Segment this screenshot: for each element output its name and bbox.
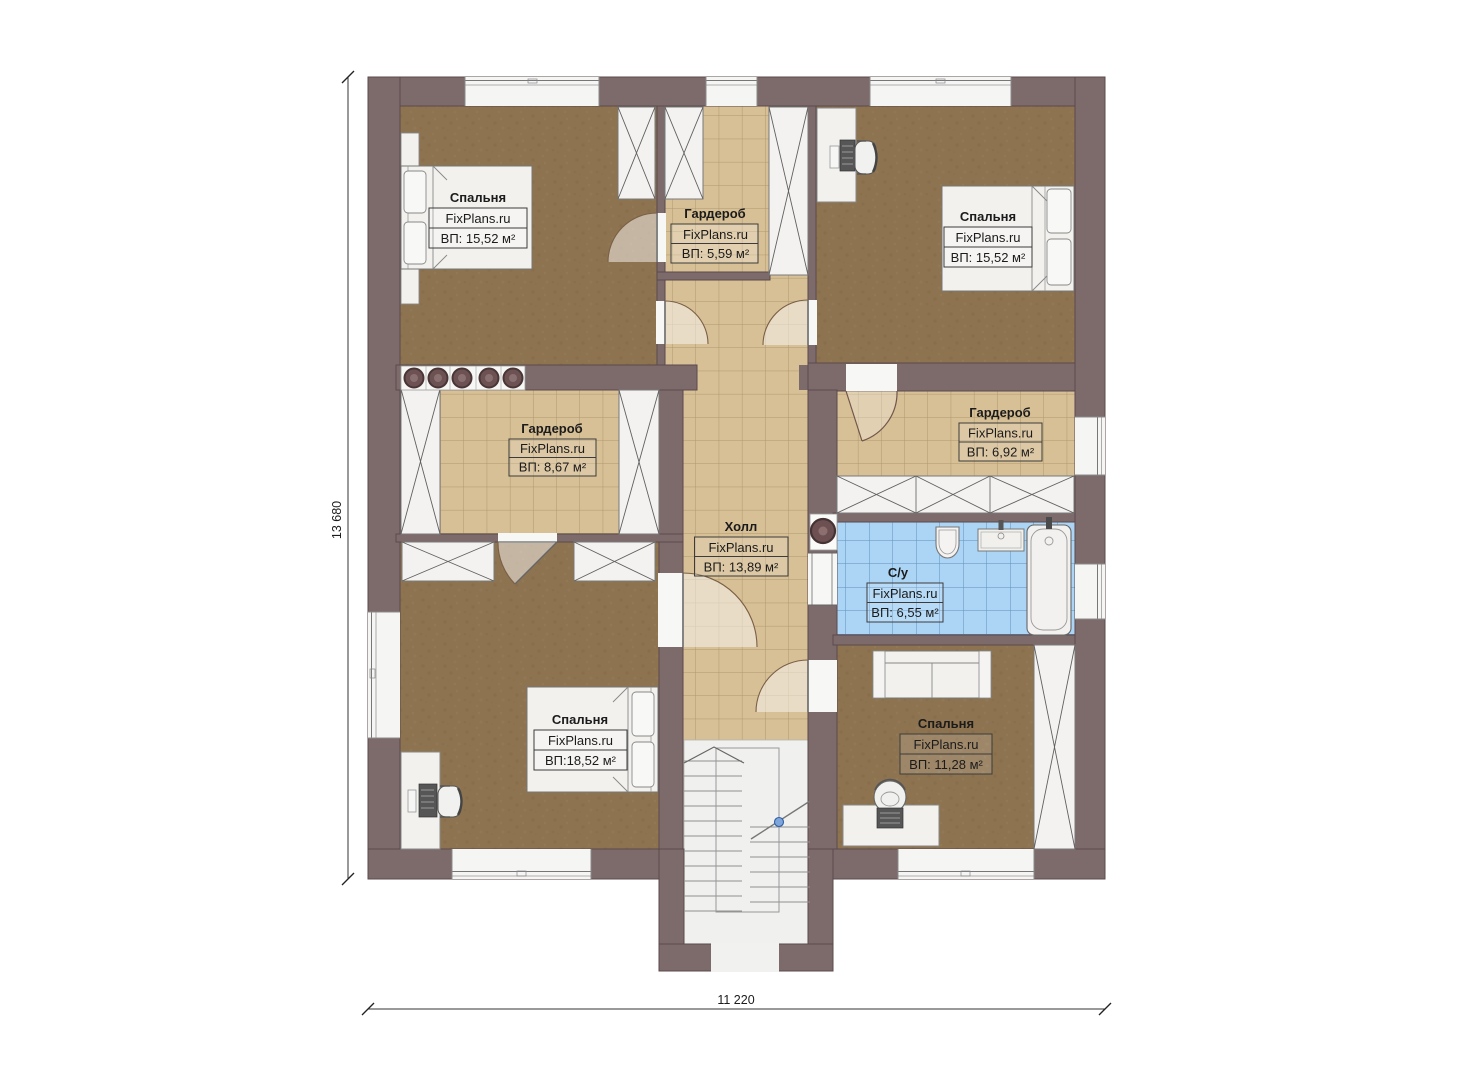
svg-text:Холл: Холл	[725, 519, 758, 534]
svg-text:Спальня: Спальня	[450, 190, 506, 205]
svg-text:Спальня: Спальня	[960, 209, 1016, 224]
svg-text:13 680: 13 680	[330, 501, 344, 539]
svg-text:ВП: 11,28 м²: ВП: 11,28 м²	[909, 757, 983, 772]
svg-text:Спальня: Спальня	[552, 712, 608, 727]
svg-text:ВП:18,52 м²: ВП:18,52 м²	[545, 753, 617, 768]
svg-text:С/у: С/у	[888, 565, 909, 580]
svg-text:FixPlans.ru: FixPlans.ru	[548, 733, 613, 748]
svg-text:FixPlans.ru: FixPlans.ru	[913, 737, 978, 752]
svg-text:FixPlans.ru: FixPlans.ru	[708, 540, 773, 555]
svg-text:ВП: 13,89 м²: ВП: 13,89 м²	[704, 560, 779, 575]
svg-text:Спальня: Спальня	[918, 716, 974, 731]
svg-text:FixPlans.ru: FixPlans.ru	[968, 426, 1033, 441]
svg-text:FixPlans.ru: FixPlans.ru	[872, 586, 937, 601]
svg-text:11 220: 11 220	[717, 993, 754, 1007]
svg-text:FixPlans.ru: FixPlans.ru	[445, 211, 510, 226]
svg-text:FixPlans.ru: FixPlans.ru	[955, 230, 1020, 245]
svg-text:ВП: 8,67 м²: ВП: 8,67 м²	[519, 460, 587, 475]
svg-text:ВП: 6,92 м²: ВП: 6,92 м²	[967, 445, 1035, 460]
svg-text:Гардероб: Гардероб	[684, 206, 745, 221]
svg-text:ВП: 6,55 м²: ВП: 6,55 м²	[871, 605, 939, 620]
svg-text:FixPlans.ru: FixPlans.ru	[683, 227, 748, 242]
svg-text:Гардероб: Гардероб	[969, 405, 1030, 420]
svg-text:Гардероб: Гардероб	[521, 421, 582, 436]
svg-text:ВП: 5,59 м²: ВП: 5,59 м²	[682, 246, 750, 261]
svg-text:FixPlans.ru: FixPlans.ru	[520, 441, 585, 456]
svg-text:ВП: 15,52 м²: ВП: 15,52 м²	[441, 231, 516, 246]
svg-text:ВП: 15,52 м²: ВП: 15,52 м²	[951, 250, 1026, 265]
